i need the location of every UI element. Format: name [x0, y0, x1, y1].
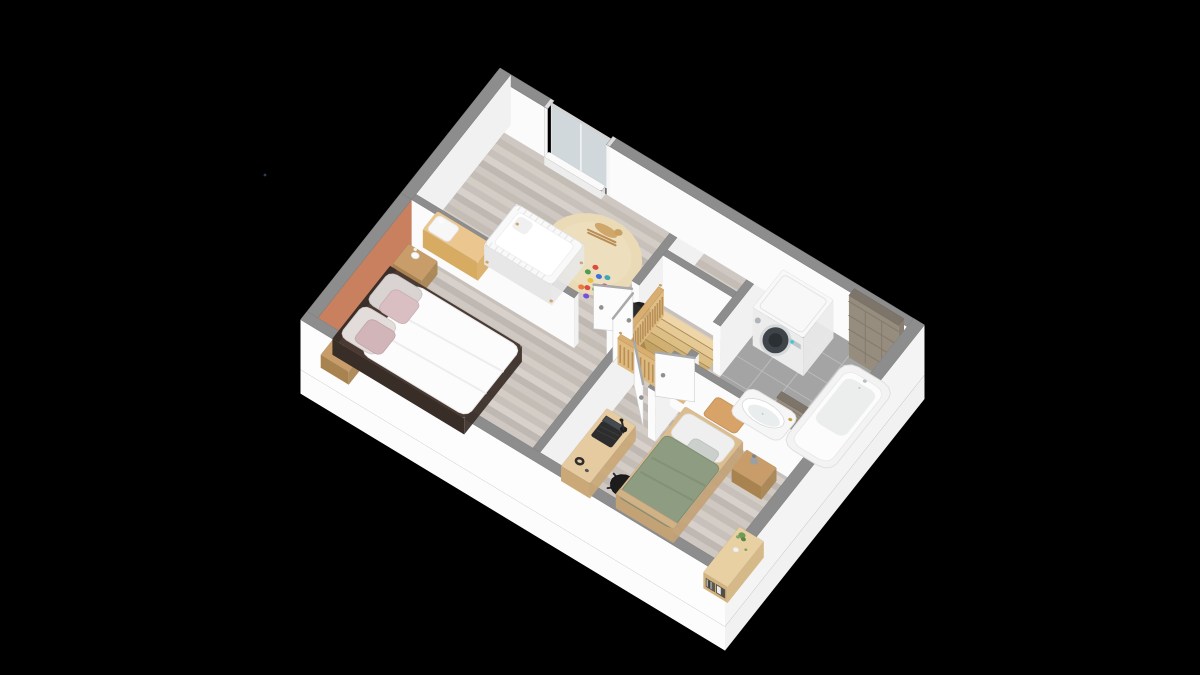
floorplan-canvas: [0, 0, 1200, 675]
floorplan-3d-view: [0, 0, 1200, 675]
door-bathroom: [655, 352, 695, 402]
artifact-dot: [264, 174, 267, 177]
